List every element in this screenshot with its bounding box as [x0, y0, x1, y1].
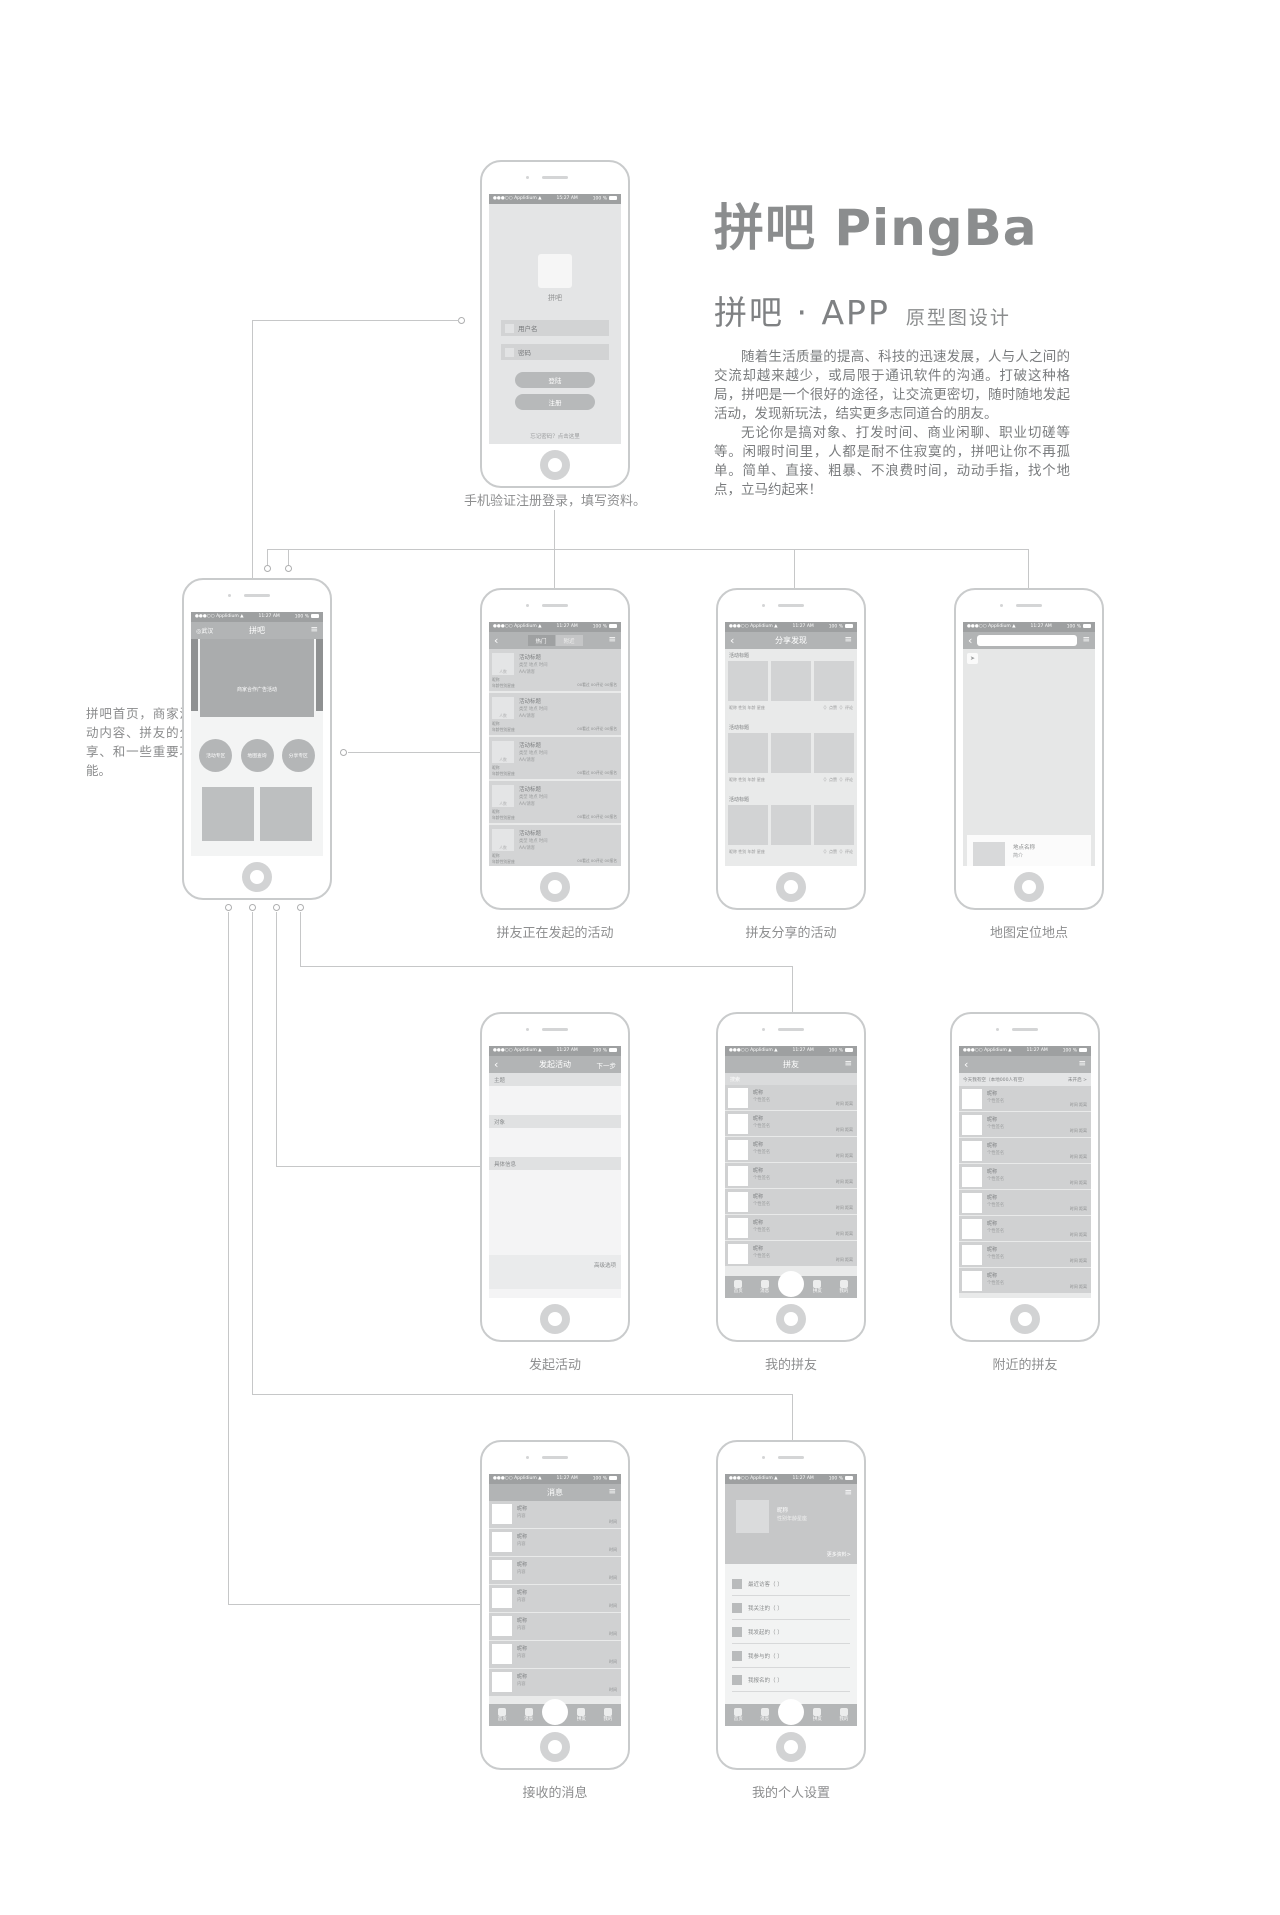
battery-icon — [845, 1476, 853, 1480]
availability-toggle[interactable]: 未开启 > — [1068, 1077, 1087, 1083]
app-icon-placeholder — [538, 254, 572, 288]
home-note: 拼吧首页，商家活动内容、拼友的分享、和一些重要功能。 — [86, 704, 192, 780]
signed-up-icon — [732, 1675, 742, 1685]
menu-icon[interactable]: ≡ — [1078, 1060, 1086, 1069]
battery-label: 100 % — [593, 1048, 617, 1054]
battery-icon — [311, 614, 319, 618]
share-image[interactable] — [814, 733, 854, 773]
tab-messages[interactable]: 消息 — [751, 1276, 777, 1298]
connector-node — [285, 565, 292, 572]
activity-thumbnail: 人数 — [492, 653, 514, 675]
carrier-label: ●●●○○ Applidium ▲ — [729, 1477, 778, 1482]
menu-item-following[interactable]: 我关注的（ ） — [732, 1596, 850, 1620]
camera-icon — [762, 1028, 765, 1031]
friend-signature: 个性签名 — [753, 1253, 770, 1259]
content-block[interactable] — [260, 787, 312, 841]
message-row[interactable]: 昵称 内容 时间 — [489, 1557, 621, 1584]
share-image[interactable] — [771, 661, 811, 701]
home-tab-icon — [734, 1280, 742, 1288]
friend-row[interactable]: 昵称 个性签名 时间 距离 — [725, 1189, 857, 1214]
nearby-screen: ●●●○○ Applidium ▲ 11:27 AM 100 % ‹ ≡ 今天我… — [959, 1046, 1091, 1298]
mine-tab-icon — [604, 1708, 612, 1716]
more-profile-link[interactable]: 更多资料> — [827, 1551, 851, 1558]
home-tab-icon — [498, 1708, 506, 1716]
share-image[interactable] — [728, 733, 768, 773]
status-bar: ●●●○○ Applidium ▲ 11:27 AM 100 % — [191, 612, 323, 622]
password-field[interactable]: 密码 — [501, 344, 609, 360]
carrier-label: ●●●○○ Applidium ▲ — [493, 1477, 542, 1482]
profile-info: 性别年龄星座 — [777, 1515, 807, 1522]
advanced-options-block[interactable]: 高级选项 — [489, 1255, 621, 1289]
brand-block: 拼吧 PingBa 拼吧 · APP 原型图设计 随着生活质量的提高、科技的迅速… — [714, 188, 1070, 500]
activity-card[interactable]: 人数 活动标题 类型 地点 时间 AA/请客 昵称 年龄性别星座 00看过 00… — [489, 825, 621, 866]
share-section[interactable]: 活动标题 昵称 性别 年龄 星座 （）点赞（）评论 — [725, 793, 857, 865]
promo-carousel[interactable]: 商家合作广告活动 — [191, 639, 323, 721]
target-field-label[interactable]: 对象 — [489, 1115, 621, 1128]
friends-search-input[interactable]: 搜索 — [725, 1073, 857, 1085]
friend-nick: 昵称 — [753, 1167, 763, 1174]
home-button[interactable] — [1014, 872, 1044, 902]
friends-tab-icon — [813, 1280, 821, 1288]
tab-bar: 首页 消息 拼友 我的 — [489, 1704, 621, 1726]
clock-label: 11:27 AM — [556, 625, 577, 630]
share-screen: ●●●○○ Applidium ▲ 11:27 AM 100 % ‹ 分享发现 … — [725, 622, 857, 866]
phone-share: ●●●○○ Applidium ▲ 11:27 AM 100 % ‹ 分享发现 … — [716, 588, 866, 910]
app-intro: 随着生活质量的提高、科技的迅速发展，人与人之间的交流却越来越少，或局限于通讯软件… — [714, 348, 1070, 500]
forgot-password-link[interactable]: 忘记密码？点击这里 — [489, 432, 621, 440]
friends-list: 昵称 个性签名 时间 距离 昵称 个性签名 时间 距离 昵称 个性签名 时间 距… — [725, 1085, 857, 1298]
friend-row[interactable]: 昵称 个性签名 时间 距离 — [725, 1085, 857, 1110]
connector-line — [252, 912, 253, 1394]
status-bar: ●●●○○ Applidium ▲ 11:27 AM 100 % — [489, 1046, 621, 1056]
avatar — [492, 1672, 512, 1692]
tab-mine[interactable]: 我的 — [831, 1276, 857, 1298]
activity-thumbnail: 人数 — [492, 829, 514, 851]
avatar — [728, 1192, 748, 1212]
speaker-slot — [542, 1028, 568, 1031]
home-screen: ●●●○○ Applidium ▲ 11:27 AM 100 % ◎武汉 拼吧 … — [191, 612, 323, 856]
friend-meta: 时间 距离 — [836, 1153, 853, 1159]
home-button[interactable] — [540, 450, 570, 480]
prototype-canvas: 拼吧 PingBa 拼吧 · APP 原型图设计 随着生活质量的提高、科技的迅速… — [0, 0, 1280, 1915]
home-button[interactable] — [540, 872, 570, 902]
feature-activity-zone[interactable]: 活动专区 — [199, 739, 232, 772]
avatar — [728, 1166, 748, 1186]
messages-list: 昵称 内容 时间 昵称 内容 时间 昵称 内容 时间 昵称 内容 — [489, 1501, 621, 1726]
tab-mine[interactable]: 我的 — [595, 1704, 621, 1726]
status-bar: ●●●○○ Applidium ▲ 11:27 AM 100 % — [959, 1046, 1091, 1056]
share-navbar: ‹ 分享发现 ≡ — [725, 632, 857, 649]
friends-tab-icon — [577, 1708, 585, 1716]
visitors-icon — [732, 1579, 742, 1589]
avatar — [962, 1089, 982, 1109]
nearby-friend-row[interactable]: 昵称 个性签名 时间 距离 — [959, 1268, 1091, 1293]
friend-nick: 昵称 — [753, 1219, 763, 1226]
friend-nick: 昵称 — [987, 1272, 997, 1279]
menu-item-joined[interactable]: 我参与的（ ） — [732, 1644, 850, 1668]
tab-friends[interactable]: 拼友 — [804, 1276, 830, 1298]
caption-create: 发起活动 — [470, 1354, 640, 1373]
tab-home[interactable]: 首页 — [725, 1704, 751, 1726]
activity-title: 活动标题 — [519, 785, 541, 793]
avatar — [962, 1167, 982, 1187]
message-row[interactable]: 昵称 内容 时间 — [489, 1529, 621, 1556]
activity-thumbnail: 人数 — [492, 697, 514, 719]
profile-avatar[interactable] — [736, 1500, 769, 1533]
clock-label: 11:27 AM — [792, 1049, 813, 1054]
map-screen: ●●●○○ Applidium ▲ 11:27 AM 100 % ‹ ≡ ➤ 地… — [963, 622, 1095, 866]
activities-navbar: ‹ 热门 附近 ≡ — [489, 632, 621, 649]
map-area[interactable]: ➤ 地点名称 简介 关注 评论 拼吧 — [963, 649, 1095, 866]
friend-row[interactable]: 昵称 个性签名 时间 距离 — [725, 1163, 857, 1188]
activity-title: 活动标题 — [519, 653, 541, 661]
menu-icon[interactable]: ≡ — [310, 626, 318, 635]
connector-line — [267, 549, 1029, 550]
message-nick: 昵称 — [517, 1561, 527, 1568]
lock-icon — [505, 348, 514, 357]
friend-nick: 昵称 — [753, 1115, 763, 1122]
messages-tab-icon — [525, 1708, 533, 1716]
tab-nearby[interactable]: 附近 — [556, 635, 583, 646]
home-button[interactable] — [540, 1304, 570, 1334]
activity-owner-info: 年龄性别星座 — [492, 771, 515, 777]
avatar — [728, 1140, 748, 1160]
activity-meta: 类型 地点 时间 — [519, 662, 548, 668]
friend-signature: 个性签名 — [987, 1280, 1004, 1286]
friend-signature: 个性签名 — [987, 1176, 1004, 1182]
connector-line — [348, 752, 480, 753]
phone-activities: ●●●○○ Applidium ▲ 11:27 AM 100 % ‹ 热门 附近… — [480, 588, 630, 910]
phone-map: ●●●○○ Applidium ▲ 11:27 AM 100 % ‹ ≡ ➤ 地… — [954, 588, 1104, 910]
friend-meta: 时间 距离 — [836, 1179, 853, 1185]
tab-friends[interactable]: 拼友 — [804, 1704, 830, 1726]
location-button[interactable]: ◎武汉 — [196, 626, 213, 635]
activity-thumbnail: 人数 — [492, 741, 514, 763]
detail-field-label[interactable]: 具体信息 — [489, 1157, 621, 1170]
activity-pay-mode: AA/请客 — [519, 669, 535, 675]
share-stats: （）点赞（）评论 — [821, 849, 853, 855]
app-subtitle: 拼吧 · APP — [714, 286, 890, 334]
friend-row[interactable]: 昵称 个性签名 时间 距离 — [725, 1215, 857, 1240]
phone-nearby: ●●●○○ Applidium ▲ 11:27 AM 100 % ‹ ≡ 今天我… — [950, 1012, 1100, 1342]
nearby-friend-row[interactable]: 昵称 个性签名 时间 距离 — [959, 1164, 1091, 1189]
home-button[interactable] — [242, 862, 272, 892]
back-icon[interactable]: ‹ — [968, 635, 972, 646]
share-section-title: 活动标题 — [725, 793, 857, 805]
mine-tab-icon — [840, 1708, 848, 1716]
speaker-slot — [542, 1456, 568, 1459]
share-section-title: 活动标题 — [725, 649, 857, 661]
tab-home[interactable]: 首页 — [489, 1704, 515, 1726]
status-bar: ●●●○○ Applidium ▲ 11:27 AM 100 % — [963, 622, 1095, 632]
caption-nearby: 附近的拼友 — [940, 1354, 1110, 1373]
carousel-next-slide — [316, 639, 323, 711]
friend-signature: 个性签名 — [753, 1201, 770, 1207]
carrier-label: ●●●○○ Applidium ▲ — [493, 197, 542, 202]
username-field[interactable]: 用户名 — [501, 320, 609, 336]
friend-signature: 个性签名 — [987, 1228, 1004, 1234]
battery-label: 100 % — [593, 624, 617, 630]
register-button[interactable]: 注册 — [515, 394, 595, 410]
next-step-button[interactable]: 下一步 — [597, 1060, 617, 1070]
avatar — [492, 1560, 512, 1580]
place-card[interactable]: 地点名称 简介 关注 评论 拼吧 — [967, 835, 1091, 866]
login-button[interactable]: 登陆 — [515, 372, 595, 388]
phone-login: ●●●○○ Applidium ▲ 15:27 AM 100 % 拼吧 用户名 … — [480, 160, 630, 488]
friend-nick: 昵称 — [987, 1246, 997, 1253]
menu-icon[interactable]: ≡ — [608, 636, 616, 645]
menu-icon[interactable]: ≡ — [844, 1060, 852, 1069]
connector-line — [252, 320, 459, 321]
speaker-slot — [1012, 1028, 1038, 1031]
carrier-label: ●●●○○ Applidium ▲ — [493, 625, 542, 630]
tab-center-action[interactable] — [778, 1704, 804, 1726]
activity-card[interactable]: 人数 活动标题 类型 地点 时间 AA/请客 昵称 年龄性别星座 00看过 00… — [489, 693, 621, 735]
tab-messages[interactable]: 消息 — [515, 1704, 541, 1726]
connector-node — [458, 317, 465, 324]
activity-card[interactable]: 人数 活动标题 类型 地点 时间 AA/请客 昵称 年龄性别星座 00看过 00… — [489, 649, 621, 691]
messages-tab-icon — [761, 1708, 769, 1716]
nearby-friend-row[interactable]: 昵称 个性签名 时间 距离 — [959, 1112, 1091, 1137]
battery-icon — [609, 1048, 617, 1052]
menu-icon[interactable]: ≡ — [608, 1488, 616, 1497]
phone-profile: ●●●○○ Applidium ▲ 11:27 AM 100 % ≡ 昵称 性别… — [716, 1440, 866, 1770]
friend-row[interactable]: 昵称 个性签名 时间 距离 — [725, 1241, 857, 1266]
activity-owner-info: 年龄性别星座 — [492, 683, 515, 689]
locate-arrow-icon: ➤ — [970, 655, 975, 662]
share-image[interactable] — [771, 805, 811, 845]
nearby-navbar: ‹ ≡ — [959, 1056, 1091, 1073]
activity-owner-info: 年龄性别星座 — [492, 727, 515, 733]
tab-mine[interactable]: 我的 — [831, 1704, 857, 1726]
share-image[interactable] — [728, 805, 768, 845]
messages-title: 消息 — [489, 1487, 621, 1498]
camera-icon — [526, 1028, 529, 1031]
map-search-input[interactable] — [977, 635, 1077, 646]
caption-messages: 接收的消息 — [470, 1782, 640, 1801]
home-button[interactable] — [1010, 1304, 1040, 1334]
tab-center-action[interactable] — [778, 1276, 804, 1298]
friend-meta: 时间 距离 — [836, 1101, 853, 1107]
place-description: 简介 — [1013, 852, 1023, 859]
home-tab-icon — [734, 1708, 742, 1716]
share-owner-info: 昵称 性别 年龄 星座 — [729, 849, 765, 855]
nearby-friend-row[interactable]: 昵称 个性签名 时间 距离 — [959, 1138, 1091, 1163]
share-image[interactable] — [814, 805, 854, 845]
connector-line — [792, 1394, 793, 1440]
battery-label: 100 % — [829, 1476, 853, 1482]
menu-item-started[interactable]: 我发起的（ ） — [732, 1620, 850, 1644]
connector-node — [273, 904, 280, 911]
share-section[interactable]: 活动标题 昵称 性别 年龄 星座 （）点赞（）评论 — [725, 721, 857, 793]
speaker-slot — [542, 604, 568, 607]
status-bar: ●●●○○ Applidium ▲ 11:27 AM 100 % — [725, 1046, 857, 1056]
battery-label: 100 % — [1063, 1048, 1087, 1054]
subject-field-label[interactable]: 主题 — [489, 1073, 621, 1086]
feature-map-search[interactable]: 地图查询 — [241, 739, 274, 772]
friend-row[interactable]: 昵称 个性签名 时间 距离 — [725, 1137, 857, 1162]
home-button[interactable] — [776, 872, 806, 902]
activity-meta: 类型 地点 时间 — [519, 750, 548, 756]
mine-tab-icon — [840, 1280, 848, 1288]
share-image[interactable] — [728, 661, 768, 701]
nearby-friend-row[interactable]: 昵称 个性签名 时间 距离 — [959, 1242, 1091, 1267]
message-nick: 昵称 — [517, 1505, 527, 1512]
avatar — [962, 1141, 982, 1161]
activity-title: 活动标题 — [519, 829, 541, 837]
tab-center-action[interactable] — [542, 1704, 568, 1726]
plus-circle-icon[interactable] — [778, 1271, 804, 1297]
carrier-label: ●●●○○ Applidium ▲ — [967, 625, 1016, 630]
battery-icon — [609, 1476, 617, 1480]
carrier-label: ●●●○○ Applidium ▲ — [729, 625, 778, 630]
battery-label: 100 % — [1067, 624, 1091, 630]
caption-login: 手机验证注册登录，填写资料。 — [455, 490, 655, 509]
activity-meta: 类型 地点 时间 — [519, 838, 548, 844]
menu-icon[interactable]: ≡ — [844, 636, 852, 645]
friend-signature: 个性签名 — [987, 1150, 1004, 1156]
message-time: 时间 — [609, 1575, 617, 1581]
message-time: 时间 — [609, 1547, 617, 1553]
avatar — [962, 1245, 982, 1265]
message-row[interactable]: 昵称 内容 时间 — [489, 1585, 621, 1612]
battery-icon — [609, 624, 617, 628]
nearby-friend-row[interactable]: 昵称 个性签名 时间 距离 — [959, 1086, 1091, 1111]
status-bar: ●●●○○ Applidium ▲ 11:27 AM 100 % — [489, 622, 621, 632]
connector-line — [792, 966, 793, 1012]
connector-line — [300, 966, 792, 967]
activity-meta: 类型 地点 时间 — [519, 706, 548, 712]
home-button[interactable] — [776, 1732, 806, 1762]
intro-paragraph-2: 无论你是搞对象、打发时间、商业闲聊、职业切磋等等。闲暇时间里，人都是耐不住寂寞的… — [714, 424, 1070, 500]
battery-icon — [845, 1048, 853, 1052]
back-icon[interactable]: ‹ — [730, 635, 734, 646]
friend-signature: 个性签名 — [753, 1149, 770, 1155]
back-icon[interactable]: ‹ — [964, 1059, 968, 1070]
friend-nick: 昵称 — [753, 1089, 763, 1096]
locate-me-button[interactable]: ➤ — [967, 653, 978, 664]
carrier-label: ●●●○○ Applidium ▲ — [493, 1049, 542, 1054]
connector-line — [276, 1166, 480, 1167]
message-time: 时间 — [609, 1519, 617, 1525]
friend-meta: 时间 距离 — [836, 1257, 853, 1263]
activity-pay-mode: AA/请客 — [519, 757, 535, 763]
profile-nick: 昵称 — [777, 1506, 788, 1514]
connector-node — [297, 904, 304, 911]
create-screen: ●●●○○ Applidium ▲ 11:27 AM 100 % ‹ 发起活动 … — [489, 1046, 621, 1298]
message-row[interactable]: 昵称 内容 时间 — [489, 1641, 621, 1668]
feature-share-zone[interactable]: 分享专区 — [282, 739, 315, 772]
message-row[interactable]: 昵称 内容 时间 — [489, 1613, 621, 1640]
speaker-slot — [778, 1028, 804, 1031]
camera-icon — [526, 1456, 529, 1459]
friend-row[interactable]: 昵称 个性签名 时间 距离 — [725, 1111, 857, 1136]
friend-signature: 个性签名 — [987, 1124, 1004, 1130]
message-nick: 昵称 — [517, 1589, 527, 1596]
friend-nick: 昵称 — [987, 1142, 997, 1149]
messages-tab-icon — [761, 1280, 769, 1288]
message-nick: 昵称 — [517, 1617, 527, 1624]
friend-meta: 时间 距离 — [1070, 1284, 1087, 1290]
activity-pay-mode: AA/请客 — [519, 713, 535, 719]
avatar — [728, 1218, 748, 1238]
message-row[interactable]: 昵称 内容 时间 — [489, 1669, 621, 1696]
back-icon[interactable]: ‹ — [494, 635, 498, 646]
menu-item-recent-visitors[interactable]: 最近访客（ ） — [732, 1572, 850, 1596]
share-section[interactable]: 活动标题 昵称 性别 年龄 星座 （）点赞（）评论 — [725, 649, 857, 721]
clock-label: 11:27 AM — [792, 1477, 813, 1482]
message-nick: 昵称 — [517, 1645, 527, 1652]
share-image[interactable] — [814, 661, 854, 701]
carousel-slide[interactable]: 商家合作广告活动 — [200, 639, 314, 717]
messages-navbar: 消息 ≡ — [489, 1484, 621, 1501]
banner-label: 商家合作广告活动 — [200, 686, 314, 693]
phone-home: ●●●○○ Applidium ▲ 11:27 AM 100 % ◎武汉 拼吧 … — [182, 578, 332, 900]
login-screen: ●●●○○ Applidium ▲ 15:27 AM 100 % 拼吧 用户名 … — [489, 194, 621, 444]
friend-meta: 时间 距离 — [836, 1231, 853, 1237]
message-row[interactable]: 昵称 内容 时间 — [489, 1501, 621, 1528]
activity-pay-mode: AA/请客 — [519, 801, 535, 807]
battery-label: 100 % — [829, 1048, 853, 1054]
camera-icon — [996, 1028, 999, 1031]
menu-icon[interactable]: ≡ — [844, 1488, 852, 1498]
connector-line — [1028, 549, 1029, 588]
speaker-slot — [778, 1456, 804, 1459]
share-images — [725, 733, 857, 773]
menu-icon[interactable]: ≡ — [1082, 636, 1090, 645]
connector-line — [252, 1394, 792, 1395]
menu-item-signed-up[interactable]: 我报名的（ ） — [732, 1668, 850, 1692]
home-button[interactable] — [540, 1732, 570, 1762]
share-images — [725, 805, 857, 845]
profile-screen: ●●●○○ Applidium ▲ 11:27 AM 100 % ≡ 昵称 性别… — [725, 1474, 857, 1726]
user-icon — [505, 324, 514, 333]
camera-icon — [526, 604, 529, 607]
plus-circle-icon[interactable] — [778, 1699, 804, 1725]
status-bar: ●●●○○ Applidium ▲ 15:27 AM 100 % — [489, 194, 621, 204]
back-icon[interactable]: ‹ — [494, 1059, 498, 1070]
plus-circle-icon[interactable] — [542, 1699, 568, 1725]
share-image[interactable] — [771, 733, 811, 773]
battery-label: 100 % — [593, 1476, 617, 1482]
clock-label: 11:27 AM — [556, 1477, 577, 1482]
friend-signature: 个性签名 — [753, 1097, 770, 1103]
segmented-control: 热门 附近 — [489, 635, 621, 646]
avatar — [492, 1616, 512, 1636]
nearby-friend-row[interactable]: 昵称 个性签名 时间 距离 — [959, 1216, 1091, 1241]
activity-list: 人数 活动标题 类型 地点 时间 AA/请客 昵称 年龄性别星座 00看过 00… — [489, 649, 621, 866]
tab-hot[interactable]: 热门 — [528, 635, 555, 646]
home-button[interactable] — [776, 1304, 806, 1334]
caption-profile: 我的个人设置 — [706, 1782, 876, 1801]
tab-messages[interactable]: 消息 — [751, 1704, 777, 1726]
activity-stats: 00看过 00评论 00报名 — [577, 770, 617, 776]
connector-node — [225, 904, 232, 911]
avatar — [962, 1193, 982, 1213]
message-content: 内容 — [517, 1541, 526, 1547]
nearby-friend-row[interactable]: 昵称 个性签名 时间 距离 — [959, 1190, 1091, 1215]
activity-card[interactable]: 人数 活动标题 类型 地点 时间 AA/请客 昵称 年龄性别星座 00看过 00… — [489, 737, 621, 779]
advanced-options-label[interactable]: 高级选项 — [594, 1261, 616, 1269]
avatar — [728, 1114, 748, 1134]
friend-nick: 昵称 — [987, 1220, 997, 1227]
friend-meta: 时间 距离 — [1070, 1154, 1087, 1160]
tab-friends[interactable]: 拼友 — [568, 1704, 594, 1726]
activity-card[interactable]: 人数 活动标题 类型 地点 时间 AA/请客 昵称 年龄性别星座 00看过 00… — [489, 781, 621, 823]
connector-line — [228, 1604, 480, 1605]
tab-home[interactable]: 首页 — [725, 1276, 751, 1298]
content-block[interactable] — [202, 787, 254, 841]
